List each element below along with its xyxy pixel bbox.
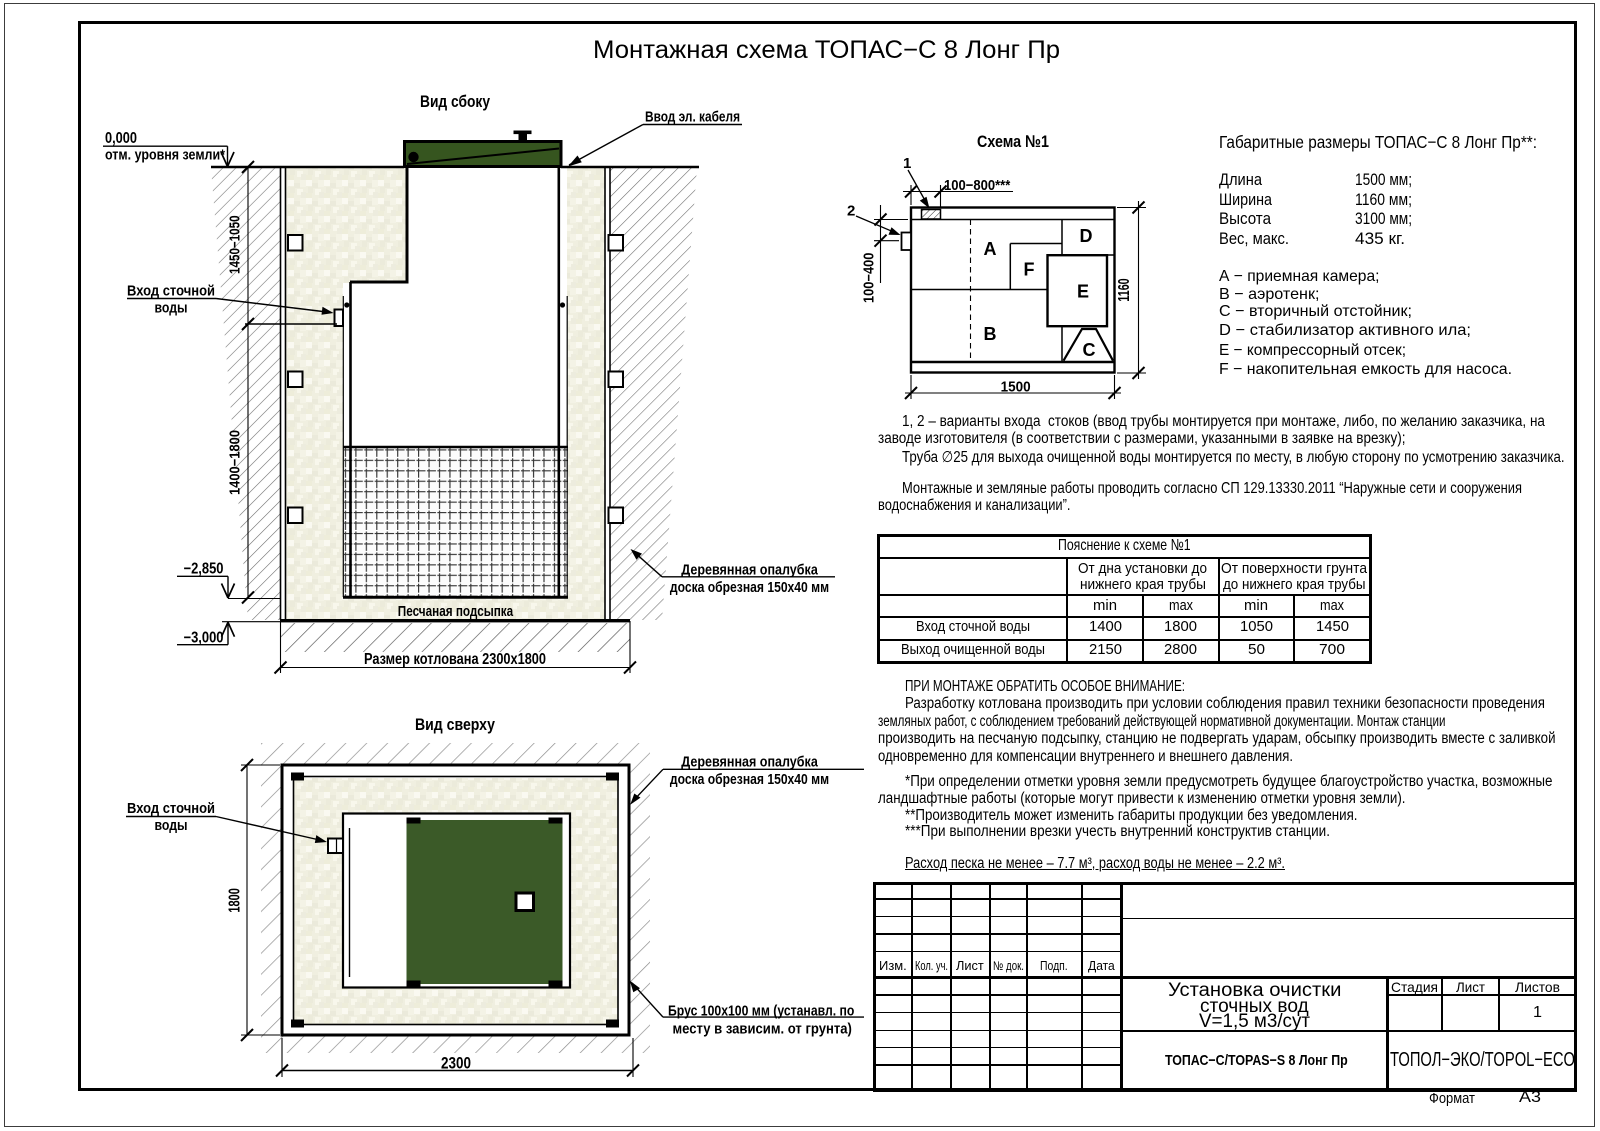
svg-text:Вход сточной: Вход сточной (127, 801, 215, 817)
svg-text:Деревянная опалубка: Деревянная опалубка (681, 563, 818, 579)
svg-text:E: E (1077, 282, 1089, 302)
svg-text:0,000: 0,000 (105, 130, 137, 147)
svg-text:1450−1050: 1450−1050 (228, 215, 244, 274)
svg-text:месту в зависим. от грунта): месту в зависим. от грунта) (673, 1022, 853, 1038)
svg-text:Размер котлована 2300х1800: Размер котлована 2300х1800 (364, 651, 546, 668)
svg-text:доска обрезная 150х40 мм: доска обрезная 150х40 мм (670, 772, 829, 788)
svg-text:воды: воды (155, 301, 188, 317)
svg-text:1400−1800: 1400−1800 (228, 430, 244, 495)
svg-text:100−800***: 100−800*** (944, 177, 1010, 194)
svg-text:C: C (1083, 340, 1096, 360)
svg-text:Вход сточной: Вход сточной (127, 284, 215, 300)
svg-text:Деревянная опалубка: Деревянная опалубка (681, 755, 818, 771)
svg-text:A: A (984, 239, 997, 259)
svg-text:−2,850: −2,850 (184, 561, 224, 578)
svg-text:Песчаная подсыпка: Песчаная подсыпка (398, 604, 514, 620)
svg-text:−3,000: −3,000 (184, 630, 224, 647)
svg-text:воды: воды (155, 818, 188, 834)
svg-text:1: 1 (903, 155, 911, 172)
svg-text:2300: 2300 (441, 1054, 471, 1073)
svg-text:Брус 100х100 мм (устанавл. по: Брус 100х100 мм (устанавл. по (668, 1003, 855, 1019)
svg-text:D: D (1080, 226, 1093, 246)
svg-text:Вид сверху: Вид сверху (415, 715, 495, 734)
svg-text:отм. уровня земли*: отм. уровня земли* (105, 148, 225, 164)
svg-text:100−400: 100−400 (862, 253, 878, 303)
svg-text:B: B (984, 324, 997, 344)
svg-text:Ввод эл. кабеля: Ввод эл. кабеля (645, 110, 740, 126)
svg-text:1500: 1500 (1001, 379, 1031, 396)
svg-text:1800: 1800 (227, 888, 244, 913)
svg-text:2: 2 (847, 203, 855, 220)
svg-text:Вид сбоку: Вид сбоку (420, 92, 490, 111)
svg-text:Схема №1: Схема №1 (977, 132, 1049, 151)
svg-text:доска обрезная 150х40 мм: доска обрезная 150х40 мм (670, 580, 829, 596)
svg-text:1160: 1160 (1116, 278, 1133, 301)
svg-text:F: F (1024, 260, 1035, 280)
